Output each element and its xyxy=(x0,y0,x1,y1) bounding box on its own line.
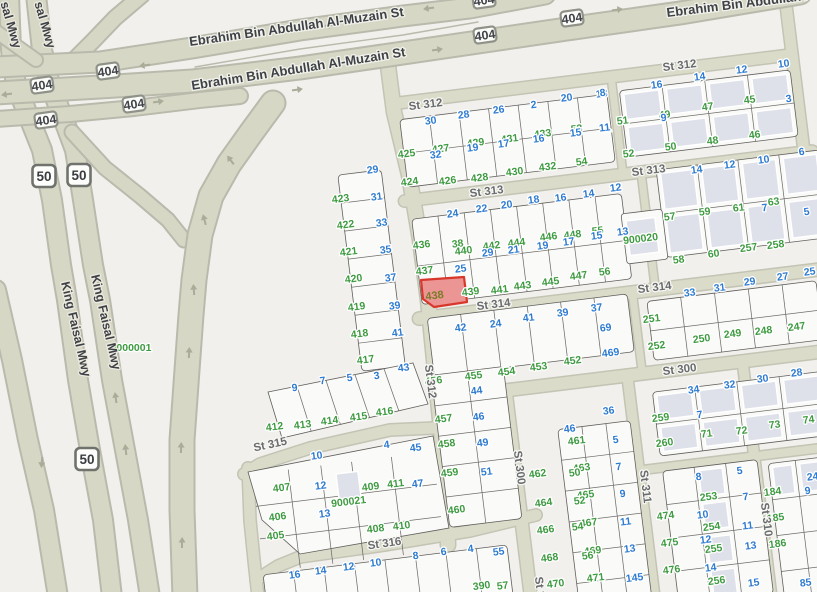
svg-text:422: 422 xyxy=(336,218,355,232)
svg-text:12: 12 xyxy=(314,479,327,492)
svg-text:30: 30 xyxy=(756,372,769,385)
svg-text:56: 56 xyxy=(598,265,611,278)
svg-text:52: 52 xyxy=(573,494,586,507)
svg-text:419: 419 xyxy=(347,300,366,314)
svg-text:254: 254 xyxy=(702,520,721,534)
svg-text:12: 12 xyxy=(609,181,622,194)
svg-text:24: 24 xyxy=(489,317,502,330)
svg-text:466: 466 xyxy=(536,523,555,537)
svg-text:28: 28 xyxy=(790,366,803,379)
svg-text:10: 10 xyxy=(777,57,790,70)
svg-text:36: 36 xyxy=(602,404,615,417)
svg-text:22: 22 xyxy=(475,202,488,215)
svg-text:54: 54 xyxy=(571,520,584,533)
svg-text:404: 404 xyxy=(123,96,146,113)
svg-text:50: 50 xyxy=(79,452,94,467)
svg-text:34: 34 xyxy=(687,383,700,396)
svg-text:439: 439 xyxy=(461,285,480,299)
svg-text:25: 25 xyxy=(803,265,816,278)
svg-text:29: 29 xyxy=(481,246,494,259)
svg-text:37: 37 xyxy=(590,301,603,314)
svg-text:423: 423 xyxy=(331,192,350,206)
svg-text:28: 28 xyxy=(457,108,470,121)
svg-text:455: 455 xyxy=(464,369,483,383)
svg-text:71: 71 xyxy=(700,427,713,440)
svg-text:57: 57 xyxy=(496,579,509,592)
svg-text:16: 16 xyxy=(532,132,545,145)
svg-text:16: 16 xyxy=(554,191,567,204)
svg-text:51: 51 xyxy=(480,465,493,478)
svg-text:256: 256 xyxy=(707,574,726,588)
svg-text:445: 445 xyxy=(541,275,560,289)
svg-text:56: 56 xyxy=(581,549,594,562)
svg-text:426: 426 xyxy=(438,174,457,188)
svg-text:258: 258 xyxy=(766,238,785,252)
svg-text:33: 33 xyxy=(683,286,696,299)
svg-text:19: 19 xyxy=(536,239,549,252)
svg-text:259: 259 xyxy=(651,411,670,425)
svg-text:15: 15 xyxy=(569,126,582,139)
svg-text:404: 404 xyxy=(35,112,58,129)
svg-text:55: 55 xyxy=(492,545,505,558)
svg-text:410: 410 xyxy=(392,519,411,533)
svg-text:406: 406 xyxy=(268,510,287,524)
svg-text:462: 462 xyxy=(528,467,547,481)
svg-text:437: 437 xyxy=(415,264,434,278)
svg-text:443: 443 xyxy=(513,279,532,293)
svg-text:17: 17 xyxy=(497,137,510,150)
svg-text:390: 390 xyxy=(472,579,491,592)
svg-text:186: 186 xyxy=(768,537,787,551)
svg-text:48: 48 xyxy=(706,134,719,147)
svg-text:15: 15 xyxy=(590,229,603,242)
svg-text:26: 26 xyxy=(492,103,505,116)
svg-text:10: 10 xyxy=(757,153,770,166)
svg-text:37: 37 xyxy=(384,271,397,284)
svg-text:57: 57 xyxy=(663,210,676,223)
svg-text:29: 29 xyxy=(743,275,756,288)
svg-text:13: 13 xyxy=(318,507,331,520)
svg-text:414: 414 xyxy=(320,414,339,428)
svg-text:413: 413 xyxy=(293,418,312,432)
svg-text:63: 63 xyxy=(767,195,780,208)
svg-text:260: 260 xyxy=(655,436,674,450)
svg-text:59: 59 xyxy=(698,205,711,218)
svg-text:41: 41 xyxy=(522,311,535,324)
svg-text:468: 468 xyxy=(540,551,559,565)
svg-text:14: 14 xyxy=(693,70,706,83)
svg-text:404: 404 xyxy=(97,63,120,80)
svg-text:20: 20 xyxy=(500,198,513,211)
svg-text:12: 12 xyxy=(735,63,748,76)
svg-text:454: 454 xyxy=(497,365,516,379)
svg-text:459: 459 xyxy=(440,466,459,480)
svg-text:10: 10 xyxy=(369,556,382,569)
svg-text:35: 35 xyxy=(379,243,392,256)
svg-text:461: 461 xyxy=(567,434,586,448)
svg-text:412: 412 xyxy=(265,420,284,434)
svg-text:11: 11 xyxy=(741,519,754,532)
svg-text:16: 16 xyxy=(650,78,663,91)
svg-text:42: 42 xyxy=(454,321,467,334)
svg-text:476: 476 xyxy=(662,563,681,577)
svg-text:469: 469 xyxy=(601,346,620,360)
svg-text:452: 452 xyxy=(563,354,582,368)
svg-text:13: 13 xyxy=(623,542,636,555)
svg-text:16: 16 xyxy=(288,568,301,581)
svg-text:14: 14 xyxy=(582,187,595,200)
svg-text:60: 60 xyxy=(707,247,720,260)
svg-text:19: 19 xyxy=(466,141,479,154)
svg-text:18: 18 xyxy=(527,193,540,206)
svg-text:39: 39 xyxy=(388,299,401,312)
svg-text:33: 33 xyxy=(375,216,388,229)
svg-text:404: 404 xyxy=(561,10,584,27)
svg-text:421: 421 xyxy=(339,245,358,259)
svg-text:27: 27 xyxy=(776,270,789,283)
svg-text:47: 47 xyxy=(411,477,424,490)
svg-text:46: 46 xyxy=(748,128,761,141)
svg-text:405: 405 xyxy=(266,529,285,543)
svg-text:49: 49 xyxy=(476,436,489,449)
svg-text:12: 12 xyxy=(699,533,712,546)
svg-text:45: 45 xyxy=(743,93,756,106)
svg-text:24: 24 xyxy=(806,470,817,483)
svg-text:464: 464 xyxy=(534,496,553,510)
svg-text:15: 15 xyxy=(747,576,760,589)
svg-text:85: 85 xyxy=(799,576,812,589)
svg-text:453: 453 xyxy=(529,360,548,374)
svg-text:247: 247 xyxy=(787,320,806,334)
svg-text:470: 470 xyxy=(546,577,565,591)
svg-text:51: 51 xyxy=(616,114,629,127)
svg-text:31: 31 xyxy=(713,281,726,294)
svg-text:50: 50 xyxy=(71,168,86,183)
svg-text:425: 425 xyxy=(397,147,416,161)
svg-text:12: 12 xyxy=(723,158,736,171)
svg-text:43: 43 xyxy=(397,361,410,374)
svg-text:249: 249 xyxy=(723,327,742,341)
svg-text:11: 11 xyxy=(598,121,611,134)
svg-text:251: 251 xyxy=(642,312,661,326)
svg-text:39: 39 xyxy=(556,306,569,319)
svg-text:50: 50 xyxy=(36,169,51,184)
svg-text:418: 418 xyxy=(350,327,369,341)
svg-text:253: 253 xyxy=(699,490,718,504)
svg-text:475: 475 xyxy=(660,536,679,550)
svg-text:411: 411 xyxy=(386,477,404,491)
svg-text:21: 21 xyxy=(507,243,520,256)
svg-text:12: 12 xyxy=(342,560,355,573)
svg-text:41: 41 xyxy=(391,326,404,339)
svg-text:408: 408 xyxy=(366,522,385,536)
svg-text:428: 428 xyxy=(470,171,489,185)
svg-text:407: 407 xyxy=(272,481,291,495)
svg-text:25: 25 xyxy=(454,262,467,275)
svg-text:417: 417 xyxy=(356,353,375,367)
svg-text:52: 52 xyxy=(622,147,635,160)
svg-text:44: 44 xyxy=(470,384,483,397)
svg-text:72: 72 xyxy=(735,424,748,437)
svg-text:447: 447 xyxy=(569,269,588,283)
svg-text:257: 257 xyxy=(739,241,758,255)
svg-text:13: 13 xyxy=(744,539,757,552)
svg-text:32: 32 xyxy=(723,378,736,391)
svg-text:415: 415 xyxy=(349,410,368,424)
svg-text:50: 50 xyxy=(568,466,581,479)
svg-text:46: 46 xyxy=(563,422,576,435)
svg-text:430: 430 xyxy=(505,165,524,179)
svg-text:45: 45 xyxy=(409,441,422,454)
svg-text:11: 11 xyxy=(619,515,632,528)
svg-text:145: 145 xyxy=(625,571,644,585)
svg-text:30: 30 xyxy=(424,114,437,127)
svg-text:58: 58 xyxy=(672,253,685,266)
svg-text:74: 74 xyxy=(802,413,815,426)
svg-text:14: 14 xyxy=(690,163,703,176)
svg-text:46: 46 xyxy=(472,410,485,423)
svg-text:20: 20 xyxy=(560,91,573,104)
svg-text:17: 17 xyxy=(562,235,575,248)
svg-text:61: 61 xyxy=(732,201,745,214)
svg-text:73: 73 xyxy=(768,418,781,431)
svg-text:404: 404 xyxy=(474,27,497,44)
svg-text:424: 424 xyxy=(400,175,419,189)
svg-text:416: 416 xyxy=(375,405,394,419)
svg-text:31: 31 xyxy=(370,190,383,203)
svg-text:440: 440 xyxy=(454,244,473,258)
svg-text:457: 457 xyxy=(434,412,453,426)
svg-text:471: 471 xyxy=(586,571,605,585)
svg-text:24: 24 xyxy=(446,207,459,220)
svg-text:29: 29 xyxy=(366,163,379,176)
svg-text:460: 460 xyxy=(447,503,466,517)
svg-text:436: 436 xyxy=(412,238,431,252)
svg-text:432: 432 xyxy=(538,160,557,174)
svg-text:250: 250 xyxy=(692,332,711,346)
svg-text:441: 441 xyxy=(490,283,509,297)
svg-text:474: 474 xyxy=(656,509,675,523)
svg-text:14: 14 xyxy=(314,564,327,577)
svg-text:420: 420 xyxy=(344,272,363,286)
svg-text:10: 10 xyxy=(310,449,323,462)
svg-text:184: 184 xyxy=(763,485,782,499)
svg-text:54: 54 xyxy=(575,155,588,168)
svg-text:438: 438 xyxy=(425,289,445,303)
svg-text:409: 409 xyxy=(361,480,380,494)
svg-text:404: 404 xyxy=(31,77,54,94)
svg-text:69: 69 xyxy=(599,321,612,334)
svg-text:10: 10 xyxy=(696,508,709,521)
svg-text:252: 252 xyxy=(647,339,666,353)
svg-text:458: 458 xyxy=(437,437,456,451)
svg-text:14: 14 xyxy=(704,561,717,574)
svg-text:50: 50 xyxy=(664,140,677,153)
svg-text:32: 32 xyxy=(429,148,442,161)
svg-text:47: 47 xyxy=(701,100,714,113)
svg-text:248: 248 xyxy=(754,324,773,338)
